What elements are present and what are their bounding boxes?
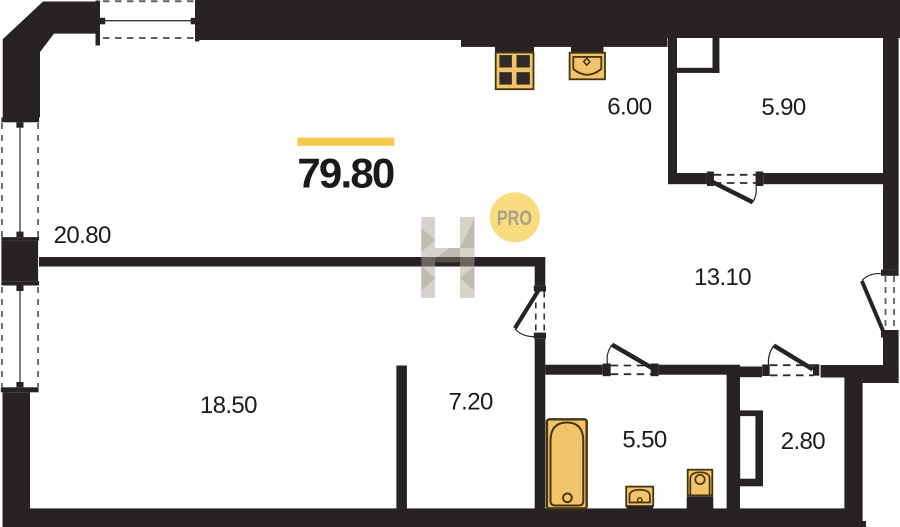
svg-text:6.00: 6.00: [607, 94, 652, 121]
svg-text:PRO: PRO: [497, 207, 532, 230]
svg-text:18.50: 18.50: [200, 392, 257, 419]
svg-text:13.10: 13.10: [694, 264, 751, 291]
svg-text:20.80: 20.80: [54, 222, 111, 249]
svg-text:5.90: 5.90: [761, 94, 806, 121]
svg-text:2.80: 2.80: [781, 428, 826, 455]
svg-text:79.80: 79.80: [297, 150, 394, 197]
svg-text:7.20: 7.20: [448, 388, 493, 415]
svg-text:5.50: 5.50: [622, 427, 667, 454]
